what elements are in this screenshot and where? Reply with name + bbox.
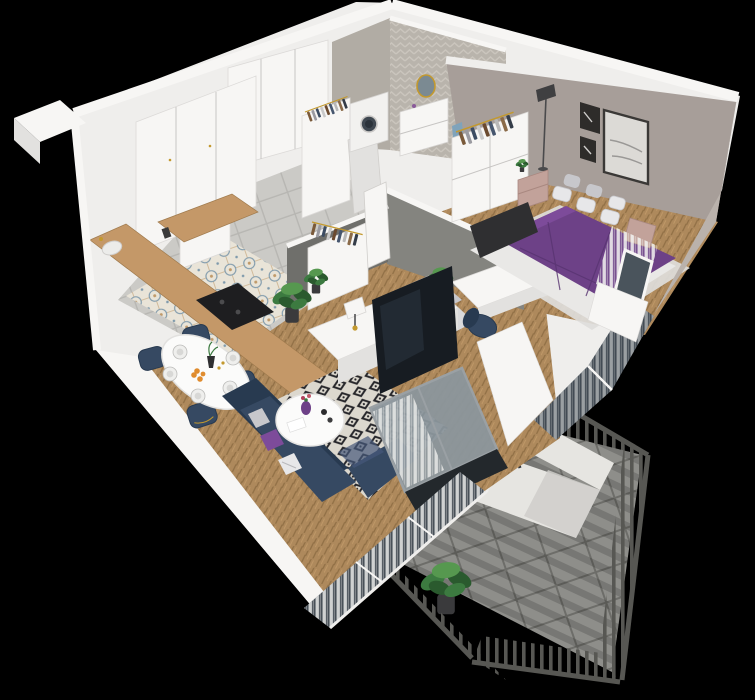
floorplan-3d-scene	[0, 0, 755, 700]
corridor-closet-door	[364, 182, 390, 268]
coffee-table	[276, 394, 344, 446]
vanity-decor	[412, 104, 416, 108]
apartment-render-canvas	[0, 0, 755, 700]
coffee-table-vase	[301, 401, 311, 415]
gold-faucet	[99, 237, 103, 241]
round-mirror	[417, 75, 435, 97]
large-art-frame	[604, 110, 648, 184]
